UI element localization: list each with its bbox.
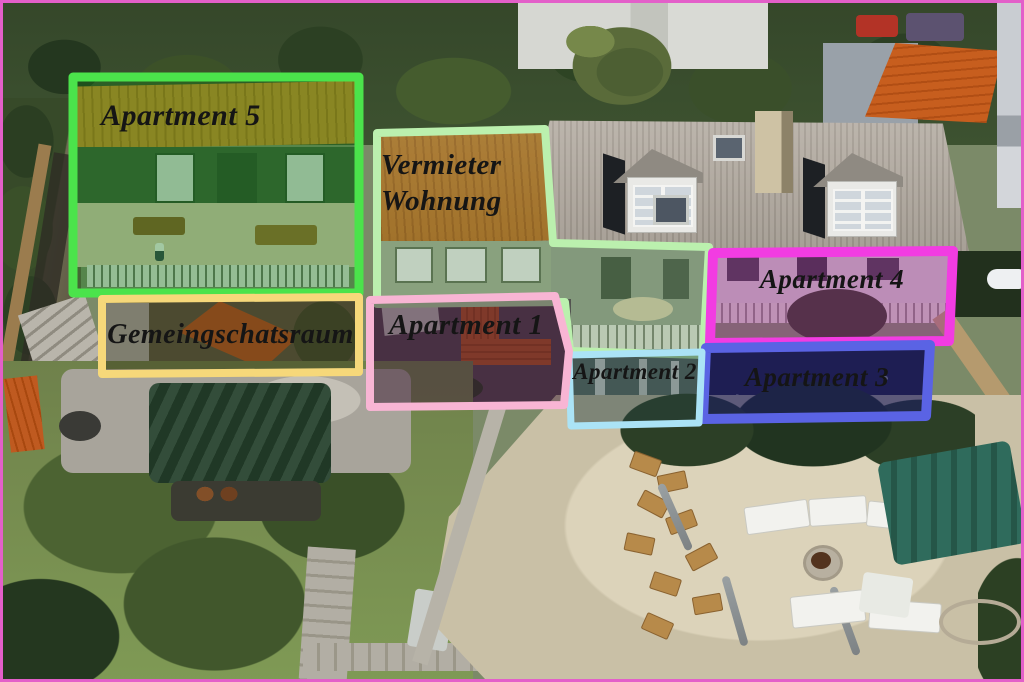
- region-outline-apartment2: [569, 352, 702, 426]
- region-outline-apartment5: [73, 77, 359, 293]
- region-outline-apartment4: [710, 251, 953, 343]
- region-outline-gemeingschatsraum: [102, 297, 359, 374]
- annotated-aerial-photo: Apartment 5 Vermieter Wohnung Gemeingsch…: [0, 0, 1024, 682]
- region-outline-apartment1: [370, 296, 569, 407]
- annotation-overlay: [3, 3, 1024, 682]
- region-outline-apartment3: [703, 345, 930, 419]
